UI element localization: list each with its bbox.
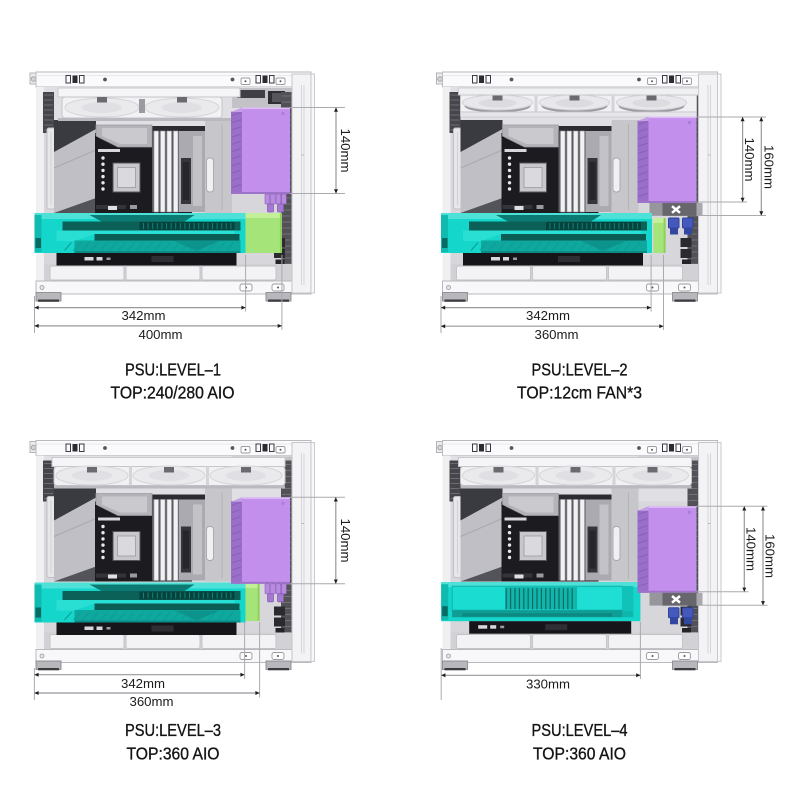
svg-text:160mm: 160mm xyxy=(762,534,777,578)
svg-text:342mm: 342mm xyxy=(526,308,570,323)
svg-text:342mm: 342mm xyxy=(122,308,166,323)
svg-text:TOP:360 AIO: TOP:360 AIO xyxy=(127,743,220,763)
svg-text:PSU:LEVEL–1: PSU:LEVEL–1 xyxy=(125,360,221,380)
svg-text:TOP:240/280 AIO: TOP:240/280 AIO xyxy=(111,383,235,403)
svg-text:400mm: 400mm xyxy=(139,327,183,342)
svg-text:342mm: 342mm xyxy=(121,676,165,691)
svg-text:TOP:360 AIO: TOP:360 AIO xyxy=(533,743,626,763)
svg-text:PSU:LEVEL–4: PSU:LEVEL–4 xyxy=(532,720,628,740)
svg-text:330mm: 330mm xyxy=(526,677,570,692)
svg-text:140mm: 140mm xyxy=(744,527,759,571)
svg-text:PSU:LEVEL–3: PSU:LEVEL–3 xyxy=(125,720,221,740)
svg-text:360mm: 360mm xyxy=(535,327,579,342)
svg-text:140mm: 140mm xyxy=(742,138,757,182)
svg-text:360mm: 360mm xyxy=(130,694,174,709)
svg-text:140mm: 140mm xyxy=(338,519,353,563)
svg-text:PSU:LEVEL–2: PSU:LEVEL–2 xyxy=(532,360,628,380)
svg-text:140mm: 140mm xyxy=(338,129,353,173)
svg-text:TOP:12cm FAN*3: TOP:12cm FAN*3 xyxy=(517,383,642,403)
svg-text:160mm: 160mm xyxy=(761,145,776,189)
